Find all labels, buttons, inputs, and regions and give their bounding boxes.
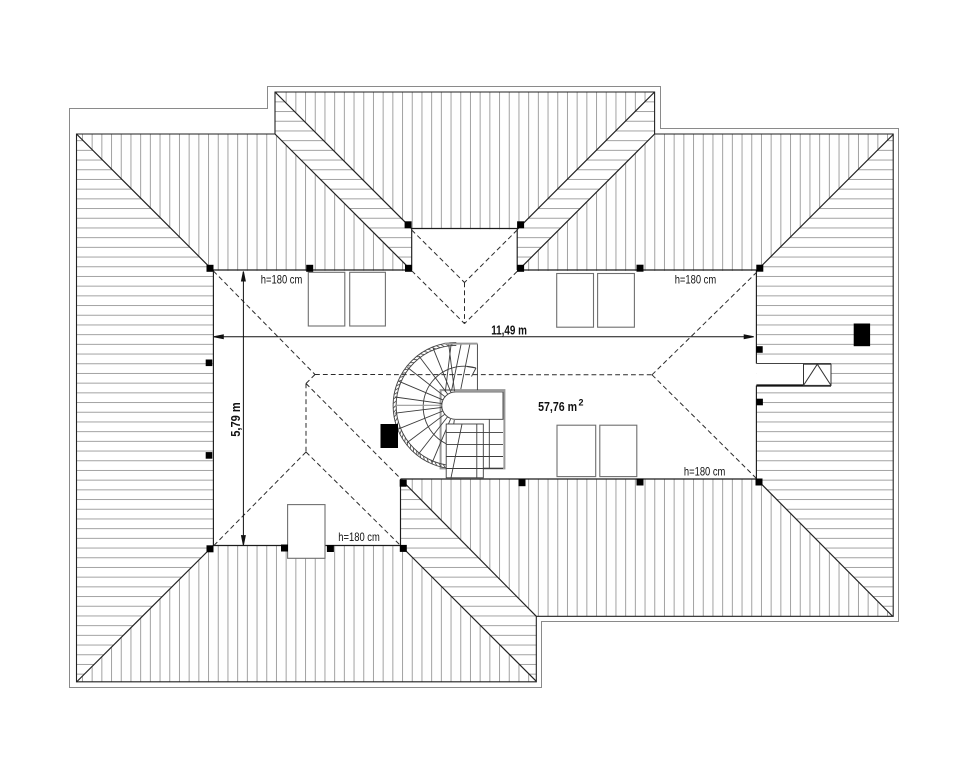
svg-text:11,49 m: 11,49 m [491, 323, 527, 338]
svg-text:57,76 m: 57,76 m [538, 399, 577, 414]
svg-text:h=180 cm: h=180 cm [684, 465, 726, 479]
svg-text:h=180 cm: h=180 cm [675, 273, 717, 287]
svg-text:h=180 cm: h=180 cm [261, 273, 303, 287]
svg-text:2: 2 [579, 398, 584, 408]
svg-text:5,79 m: 5,79 m [228, 402, 243, 437]
svg-text:h=180 cm: h=180 cm [338, 530, 380, 544]
